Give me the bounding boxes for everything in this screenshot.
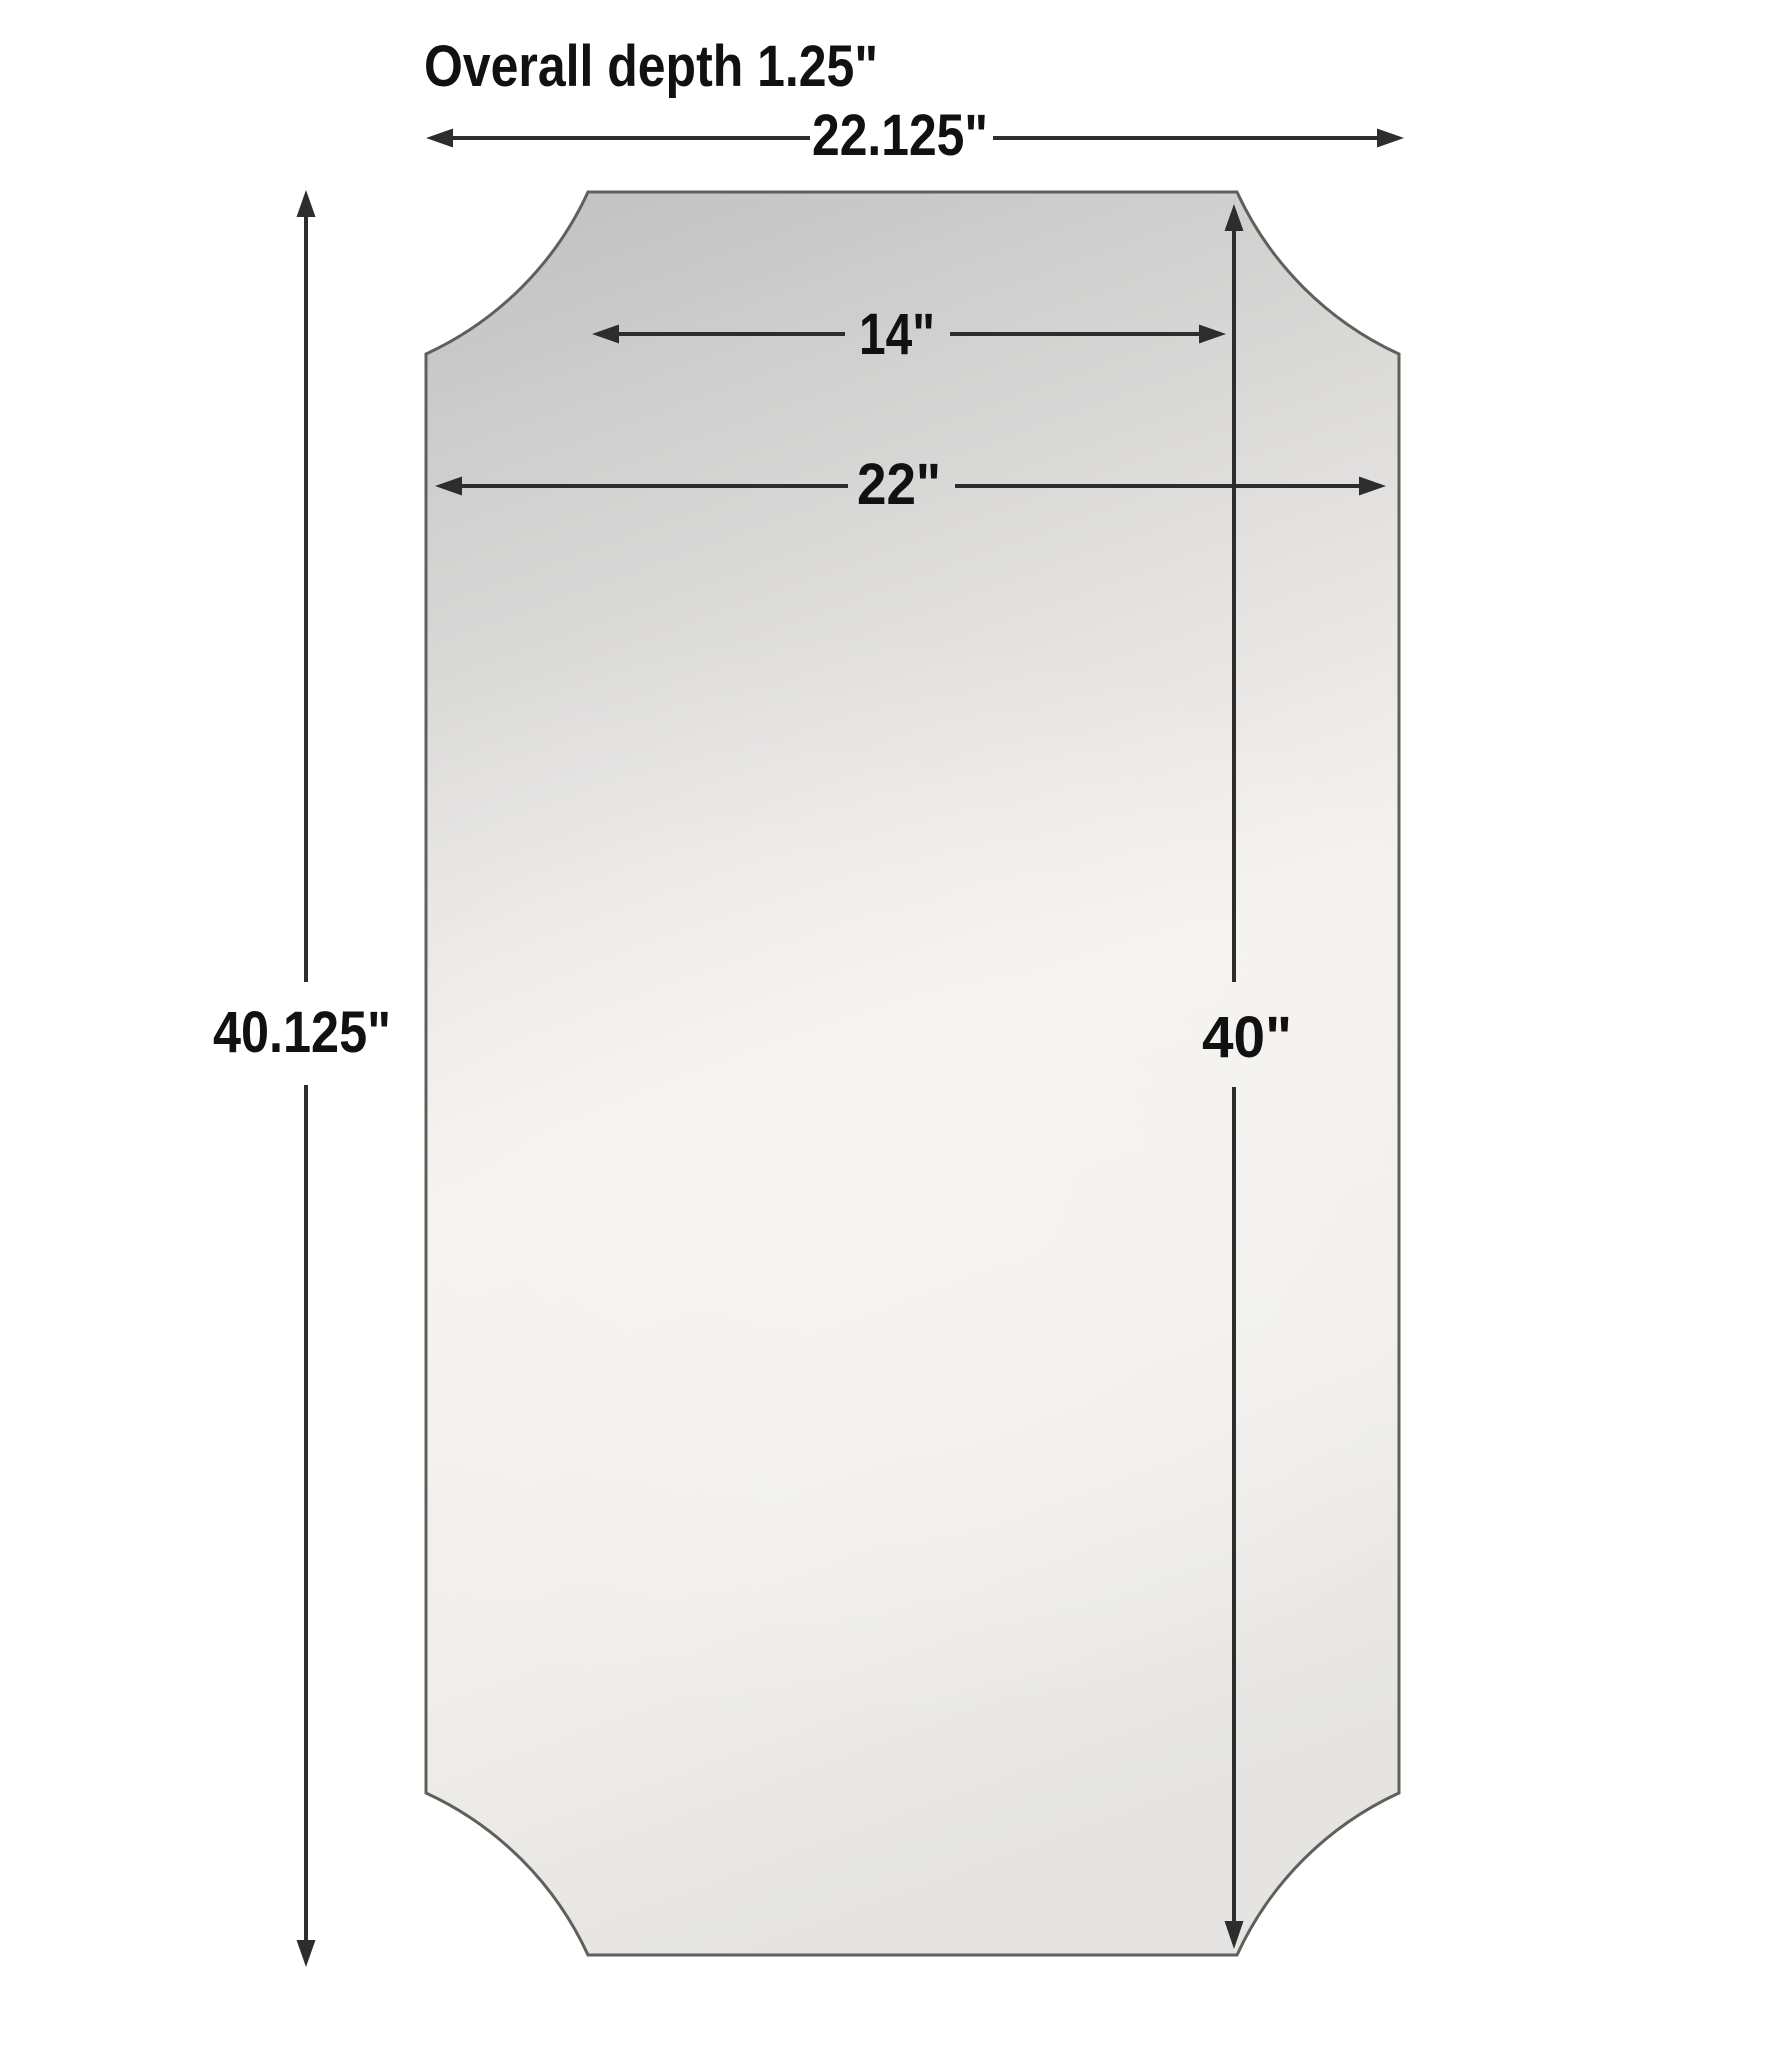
svg-text:22.125": 22.125" [812,103,988,168]
svg-text:14": 14" [859,302,935,367]
svg-text:22": 22" [857,452,941,517]
svg-text:40": 40" [1202,1005,1292,1070]
svg-text:Overall depth 1.25": Overall depth 1.25" [424,34,878,99]
svg-text:40.125": 40.125" [213,1000,391,1065]
